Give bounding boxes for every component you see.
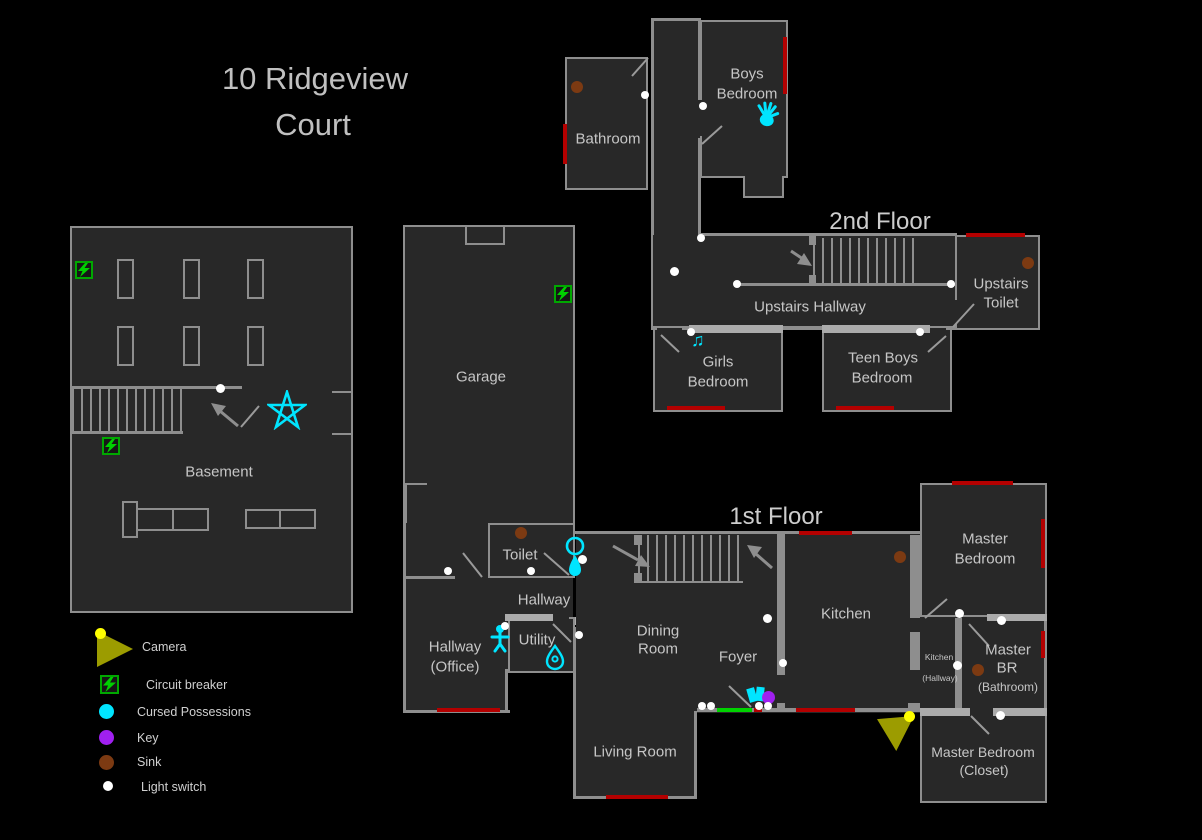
room-label-master-br: (Bathroom): [978, 680, 1038, 694]
door-gap: [969, 713, 995, 716]
room-label-dining: Room: [638, 641, 678, 658]
room-label-dining: Dining: [637, 623, 680, 640]
light-switch-icon: [641, 91, 649, 99]
circuit-breaker-icon: [102, 437, 120, 455]
light-switch-icon: [764, 702, 772, 710]
window-marker: [836, 406, 894, 410]
window-marker: [799, 531, 852, 535]
room-label-boys-bedroom: Boys: [730, 66, 763, 83]
room-label-master-bedroom: Master: [962, 531, 1008, 548]
wall: [651, 18, 700, 21]
light-switch-icon: [575, 631, 583, 639]
sink-icon: [894, 551, 906, 563]
sink-icon: [1022, 257, 1034, 269]
wall-band: [505, 614, 553, 621]
stair-post: [634, 573, 642, 583]
page-title-line1: 10 Ridgeview: [222, 61, 408, 97]
basement-pillar: [183, 326, 200, 366]
window-marker: [966, 233, 1025, 237]
wall-band: [822, 325, 930, 333]
table-divider: [172, 509, 174, 530]
room-label-hallway-office: (Office): [431, 659, 480, 676]
room-label-foyer: Foyer: [719, 649, 757, 666]
window-marker: [783, 37, 787, 94]
door-gap: [922, 611, 950, 614]
wall-kitchen-east: [910, 535, 920, 618]
basement-alcove: [332, 391, 353, 435]
light-switch-icon: [997, 616, 1006, 625]
door-gap: [657, 328, 682, 331]
boys-bedroom-notch: [743, 176, 784, 198]
light-switch-icon: [755, 702, 763, 710]
room-label-girls-bedroom: Bedroom: [688, 374, 749, 391]
staircase-basement: [72, 389, 182, 432]
wall: [783, 326, 824, 330]
floor-plan: ♫: [0, 0, 1202, 840]
room-label-bathroom-2f: Bathroom: [575, 131, 640, 148]
light-switch-icon: [733, 280, 741, 288]
room-living: [576, 627, 697, 799]
light-switch-icon: [779, 659, 787, 667]
light-switch-icon: [707, 702, 715, 710]
light-switch-icon: [527, 567, 535, 575]
basement-pillar: [247, 259, 264, 299]
room-label-closet: (Closet): [959, 762, 1008, 778]
wall: [694, 711, 697, 799]
room-label-kitchen-hallway: (Hallway): [922, 673, 957, 683]
light-switch-icon: [501, 622, 509, 630]
light-switch-icon: [699, 102, 707, 110]
cursed-possessions-icon: [99, 704, 114, 719]
room-label-master-br: Master: [985, 642, 1031, 659]
room-label-garage: Garage: [456, 369, 506, 386]
window-marker: [667, 406, 725, 410]
sink-icon: [515, 527, 527, 539]
garage-door-notch: [465, 227, 505, 245]
summoning-circle-icon: [267, 390, 307, 430]
room-label-master-bedroom: Bedroom: [955, 551, 1016, 568]
room-label-kitchen: Kitchen: [821, 606, 871, 623]
room-label-hallway: Hallway: [518, 592, 571, 609]
circuit-breaker-icon: [100, 675, 119, 694]
light-switch-icon: [697, 234, 705, 242]
room-label-teen-boys-bedroom: Teen Boys: [848, 350, 918, 367]
room-label-toilet: Toilet: [502, 547, 537, 564]
wall-band: [987, 614, 1047, 621]
table-divider: [279, 510, 281, 528]
wall: [403, 576, 455, 579]
wall: [403, 521, 406, 713]
legend-label-sink: Sink: [137, 755, 161, 769]
room-label-upstairs-toilet: Upstairs: [973, 276, 1028, 293]
door-gap: [640, 59, 644, 79]
light-switch-icon: [996, 711, 1005, 720]
door-gap: [745, 172, 780, 176]
basement-pillar: [247, 326, 264, 366]
light-switch-icon: [698, 702, 706, 710]
window-marker: [606, 795, 668, 799]
window-marker: [563, 124, 567, 164]
monkey-paw-icon: [752, 100, 782, 130]
stair-rail: [737, 283, 955, 286]
circuit-breaker-icon: [75, 261, 93, 279]
room-label-living-room: Living Room: [593, 744, 676, 761]
legend-label-cursed-possessions: Cursed Possessions: [137, 705, 251, 719]
light-switch-icon: [953, 661, 962, 670]
circuit-breaker-icon: [554, 285, 572, 303]
room-label-upstairs-hallway: Upstairs Hallway: [754, 299, 866, 316]
room-label-closet: Master Bedroom: [931, 744, 1034, 760]
room-label-boys-bedroom: Bedroom: [717, 86, 778, 103]
garage-alcove: [405, 483, 427, 527]
wall-foyer-east: [777, 533, 785, 675]
page-title-line2: Court: [275, 107, 351, 143]
sink-icon: [571, 81, 583, 93]
wall: [573, 627, 576, 799]
basement-pillar: [117, 326, 134, 366]
wall: [575, 531, 780, 534]
room-label-kitchen-hallway: Kitchen: [925, 652, 953, 662]
legend-label-key: Key: [137, 731, 159, 745]
light-switch-icon: [955, 609, 964, 618]
legend-label-camera: Camera: [142, 640, 186, 654]
light-switch-icon: [444, 567, 452, 575]
sink-icon: [972, 664, 984, 676]
camera-dot: [95, 628, 106, 639]
door-gap: [955, 300, 958, 324]
wall-kitchen-east: [910, 632, 920, 670]
stair-post: [809, 236, 816, 245]
room-bathroom-2f: [565, 57, 648, 190]
window-marker: [1041, 631, 1045, 658]
room-label-girls-bedroom: Girls: [703, 354, 734, 371]
window-marker: [1041, 519, 1045, 568]
sink-icon: [99, 755, 114, 770]
room-kitchen-hallway-bath: [920, 617, 1047, 713]
entry-door-marker: [717, 708, 752, 712]
legend-label-circuit-breaker: Circuit breaker: [146, 678, 227, 692]
key-icon: [99, 730, 114, 745]
room-label-utility: Utility: [519, 632, 556, 649]
stair-post: [634, 535, 642, 545]
room-label-upstairs-toilet: Toilet: [983, 295, 1018, 312]
window-marker: [437, 708, 500, 712]
legend-label-light-switch: Light switch: [141, 780, 206, 794]
basement-pillar: [183, 259, 200, 299]
room-label-teen-boys-bedroom: Bedroom: [852, 370, 913, 387]
camera-dot: [904, 711, 915, 722]
wall: [505, 669, 508, 713]
light-switch-icon: [916, 328, 924, 336]
room-label-master-br: BR: [997, 660, 1018, 677]
staircase-2f: [813, 238, 915, 284]
light-switch-icon: [578, 555, 587, 564]
light-switch-icon: [103, 781, 113, 791]
staircase-1f: [638, 535, 743, 583]
window-marker: [796, 708, 855, 712]
light-switch-icon: [763, 614, 772, 623]
room-label-hallway-office: Hallway: [429, 639, 482, 656]
light-switch-icon: [216, 384, 225, 393]
wall: [70, 431, 183, 434]
basement-pillar: [117, 259, 134, 299]
wall-band: [920, 708, 970, 716]
floor-label-1st: 1st Floor: [729, 503, 822, 531]
light-switch-icon: [947, 280, 955, 288]
floor-label-2nd: 2nd Floor: [829, 208, 930, 236]
window-marker: [952, 481, 1013, 485]
light-switch-icon: [687, 328, 695, 336]
room-label-basement: Basement: [185, 464, 253, 481]
light-switch-icon: [670, 267, 679, 276]
